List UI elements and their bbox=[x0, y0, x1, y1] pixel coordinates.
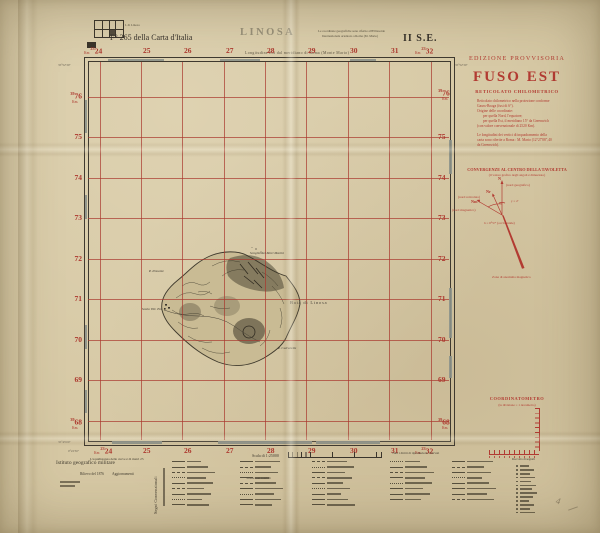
reticolato-title: RETICOLATO CHILOMETRICO bbox=[452, 89, 582, 94]
grid-easting-top-30: 30 bbox=[350, 46, 358, 55]
km-unit: Km. bbox=[72, 426, 78, 430]
corner-lat-top-left: 35°52'30" bbox=[58, 63, 71, 67]
coordinatometro-ruler-vertical bbox=[535, 408, 540, 451]
coordinatometro-subtitle: (la divisione = 1 decametro) bbox=[452, 403, 582, 407]
grid-easting-top-28: 28 bbox=[267, 46, 275, 55]
minute-bar bbox=[85, 195, 87, 219]
grid-northing-right-74: 74 bbox=[438, 173, 446, 182]
edition-label: EDIZIONE PROVVISORIA bbox=[452, 55, 582, 62]
copyright-note: Tutti i diritti di riproduzione riservat… bbox=[392, 451, 439, 455]
km-unit: Km. bbox=[442, 97, 448, 101]
grid-easting-top-24: Km2324 bbox=[84, 46, 102, 56]
grid-easting-top-27: 27 bbox=[226, 46, 234, 55]
corner-lat-top-right: 35°52'30" bbox=[455, 63, 468, 67]
minute-bar bbox=[85, 325, 87, 349]
grid-northing-left-69: 69 bbox=[56, 375, 82, 384]
magnetic-anomaly-label: Zona di anomalia magnetica bbox=[492, 275, 531, 279]
north-grid-letter: Nr bbox=[486, 189, 491, 194]
minute-bar bbox=[449, 288, 451, 338]
legend-row-placeholder bbox=[240, 502, 306, 507]
geo-note-line1: Le coordinate geografiche sono riferite … bbox=[318, 29, 382, 33]
geo-note-line2: Internazionale orientato a Roma (M. Mari… bbox=[318, 34, 382, 38]
legend-column bbox=[172, 459, 234, 508]
toponym-calcarella: P. Calcarella bbox=[278, 346, 296, 350]
grid-easting-top-25: 25 bbox=[143, 46, 151, 55]
north-geo-sub: (nord geografico) bbox=[506, 183, 530, 187]
minute-bar bbox=[108, 59, 164, 61]
grid-easting-bottom-24: Km2324 bbox=[94, 446, 112, 456]
grid-northing-left-74: 74 bbox=[56, 173, 82, 182]
signal-row-placeholder bbox=[516, 511, 546, 515]
reticolato-note: Reticolato chilometrico nella proiezione… bbox=[477, 99, 549, 129]
grid-easting-top-29: 29 bbox=[308, 46, 316, 55]
north-mag-letter: Nm bbox=[471, 199, 478, 204]
paper-fold-left bbox=[18, 0, 38, 533]
minute-bar bbox=[449, 356, 451, 378]
km-unit: Km. bbox=[442, 426, 448, 430]
linosa-island-drawing bbox=[152, 246, 312, 374]
grid-easting-top-32: Km2332 bbox=[415, 46, 433, 56]
minute-bar bbox=[350, 59, 376, 61]
grid-northing-right-71: 71 bbox=[438, 294, 446, 303]
minute-bar bbox=[220, 59, 260, 61]
corner-lon-bottom-left: 0°22'30" bbox=[68, 449, 79, 453]
corner-lat-bottom-left: 35°45'00" bbox=[58, 440, 71, 444]
legend-row-placeholder bbox=[172, 502, 234, 507]
legend-signals-column bbox=[516, 464, 546, 515]
legend-column bbox=[312, 459, 384, 508]
legend-row-placeholder bbox=[452, 497, 510, 502]
scale-bar-subdivisions bbox=[288, 452, 310, 457]
toponym-ponente: P. Ponente bbox=[149, 269, 164, 273]
grid-northing-left-75: 75 bbox=[56, 132, 82, 141]
inset-label: I. di Linosa bbox=[125, 23, 140, 27]
legend-placeholder-columns bbox=[0, 459, 600, 519]
km-unit: Km. bbox=[72, 100, 78, 104]
longitude-axis-label: Longitudine Est dal meridiano di Roma (M… bbox=[245, 51, 349, 55]
grid-northing-right-75: 75 bbox=[438, 132, 446, 141]
grid-northing-left-71: 71 bbox=[56, 294, 82, 303]
coordinatometro-ruler-horizontal bbox=[489, 450, 539, 455]
north-geo-letter: N bbox=[498, 176, 501, 181]
gamma-angle-label: γ = 2' bbox=[511, 199, 518, 203]
minute-bar bbox=[316, 441, 380, 443]
coordinatometro-title: COORDINATOMETRO bbox=[452, 396, 582, 401]
sheet-reference: F° 265 della Carta d'Italia bbox=[110, 33, 192, 42]
map-sheet-photo: I. di Linosa F° 265 della Carta d'Italia… bbox=[0, 0, 600, 533]
legend-row-placeholder bbox=[312, 502, 384, 507]
grid-northing-right-72: 72 bbox=[438, 254, 446, 263]
toponym-scalo: Scalo Vitt. Em. bbox=[142, 307, 163, 311]
fuso-est-title: FUSO EST bbox=[452, 69, 582, 86]
grid-northing-left-73: 73 bbox=[56, 213, 82, 222]
map-title: LINOSA bbox=[240, 27, 295, 38]
convergence-diagram bbox=[450, 176, 560, 280]
minute-bar bbox=[112, 441, 162, 443]
grid-easting-bottom-25: 25 bbox=[143, 446, 151, 455]
minute-bar bbox=[218, 441, 312, 443]
minute-bar bbox=[85, 390, 87, 413]
grid-easting-top-31: 31 bbox=[391, 46, 399, 55]
scale-label: Scala di 1:25000 bbox=[252, 453, 279, 458]
toponym-scoglio: Scoglio dei Mori Marini bbox=[250, 251, 284, 255]
grid-northing-left-70: 70 bbox=[56, 335, 82, 344]
quadrant-label: II S.E. bbox=[403, 33, 438, 44]
minute-bar bbox=[85, 100, 87, 133]
grid-easting-top-26: 26 bbox=[184, 46, 192, 55]
legend-column bbox=[452, 459, 510, 502]
north-mag-sub: (nord magnetico) bbox=[452, 208, 475, 212]
delta-angle-label: δ = 0°57' (occidentale) bbox=[484, 221, 515, 225]
grid-easting-bottom-27: 27 bbox=[226, 446, 234, 455]
grid-northing-right-70: 70 bbox=[438, 335, 446, 344]
legend-column bbox=[390, 459, 448, 502]
grid-northing-right-73: 73 bbox=[438, 213, 446, 222]
convergence-title: CONVERGENZE AL CENTRO DELLA TAVOLETTA bbox=[452, 167, 582, 172]
grid-easting-bottom-26: 26 bbox=[184, 446, 192, 455]
toponym-baia: Baia di Linosa bbox=[290, 300, 327, 305]
legend-row-placeholder bbox=[390, 497, 448, 502]
legend-column bbox=[240, 459, 306, 508]
longitude-note: Le longitudini dei vertici di inquadrame… bbox=[477, 133, 552, 148]
grid-northing-left-72: 72 bbox=[56, 254, 82, 263]
grid-northing-right-69: 69 bbox=[438, 375, 446, 384]
